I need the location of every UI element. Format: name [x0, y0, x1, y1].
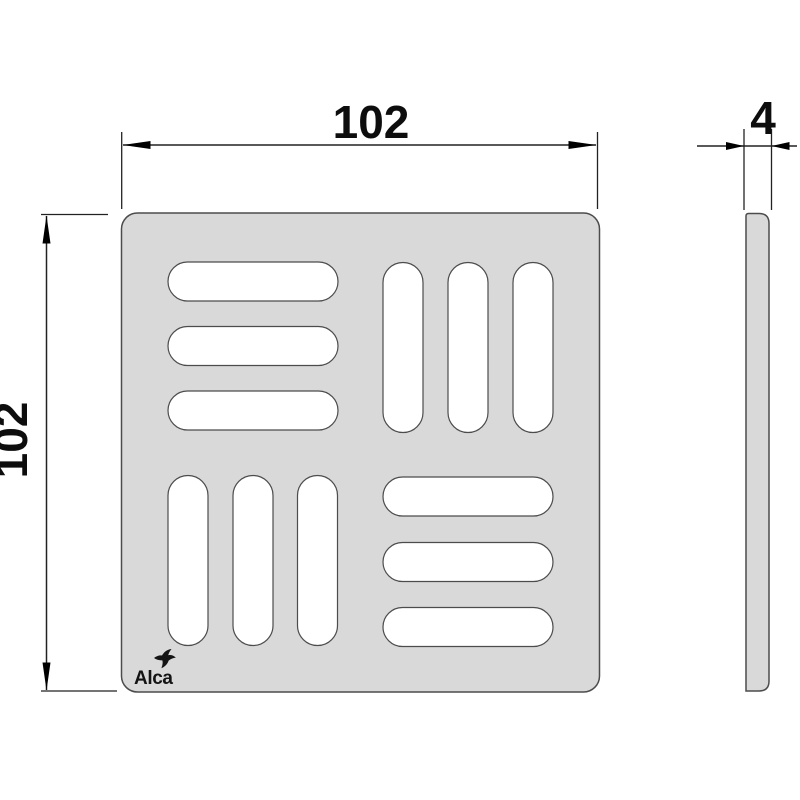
height-dimension-label: 102	[0, 402, 37, 479]
width-dimension-label: 102	[333, 96, 410, 148]
arrow-right-icon	[569, 141, 597, 149]
grate-slot-tr-2	[448, 263, 488, 433]
grate-slot-tl-1	[168, 262, 338, 301]
technical-drawing: Alca 102 102 4	[0, 0, 800, 800]
arrow-up-icon	[43, 216, 51, 244]
arrow-down-icon	[43, 663, 51, 691]
thickness-dimension: 4	[697, 92, 797, 210]
grate-slot-br-3	[383, 608, 553, 647]
grate-slot-bl-3	[298, 476, 338, 646]
alca-logo-text: Alca	[134, 668, 173, 689]
arrow-right-icon	[726, 142, 744, 150]
grate-slot-br-1	[383, 477, 553, 516]
grate-slot-tl-3	[168, 391, 338, 430]
side-view	[746, 214, 769, 692]
front-view: Alca	[122, 213, 600, 692]
thickness-dimension-label: 4	[750, 92, 776, 144]
grate-slot-bl-1	[168, 476, 208, 646]
width-dimension: 102	[122, 96, 598, 209]
arrow-left-icon	[123, 141, 151, 149]
grate-slot-tr-1	[383, 263, 423, 433]
grate-slot-tr-3	[513, 263, 553, 433]
side-profile	[746, 214, 769, 692]
grate-slot-bl-2	[233, 476, 273, 646]
grate-slot-br-2	[383, 543, 553, 582]
grate-slot-tl-2	[168, 327, 338, 366]
height-dimension: 102	[0, 215, 117, 692]
